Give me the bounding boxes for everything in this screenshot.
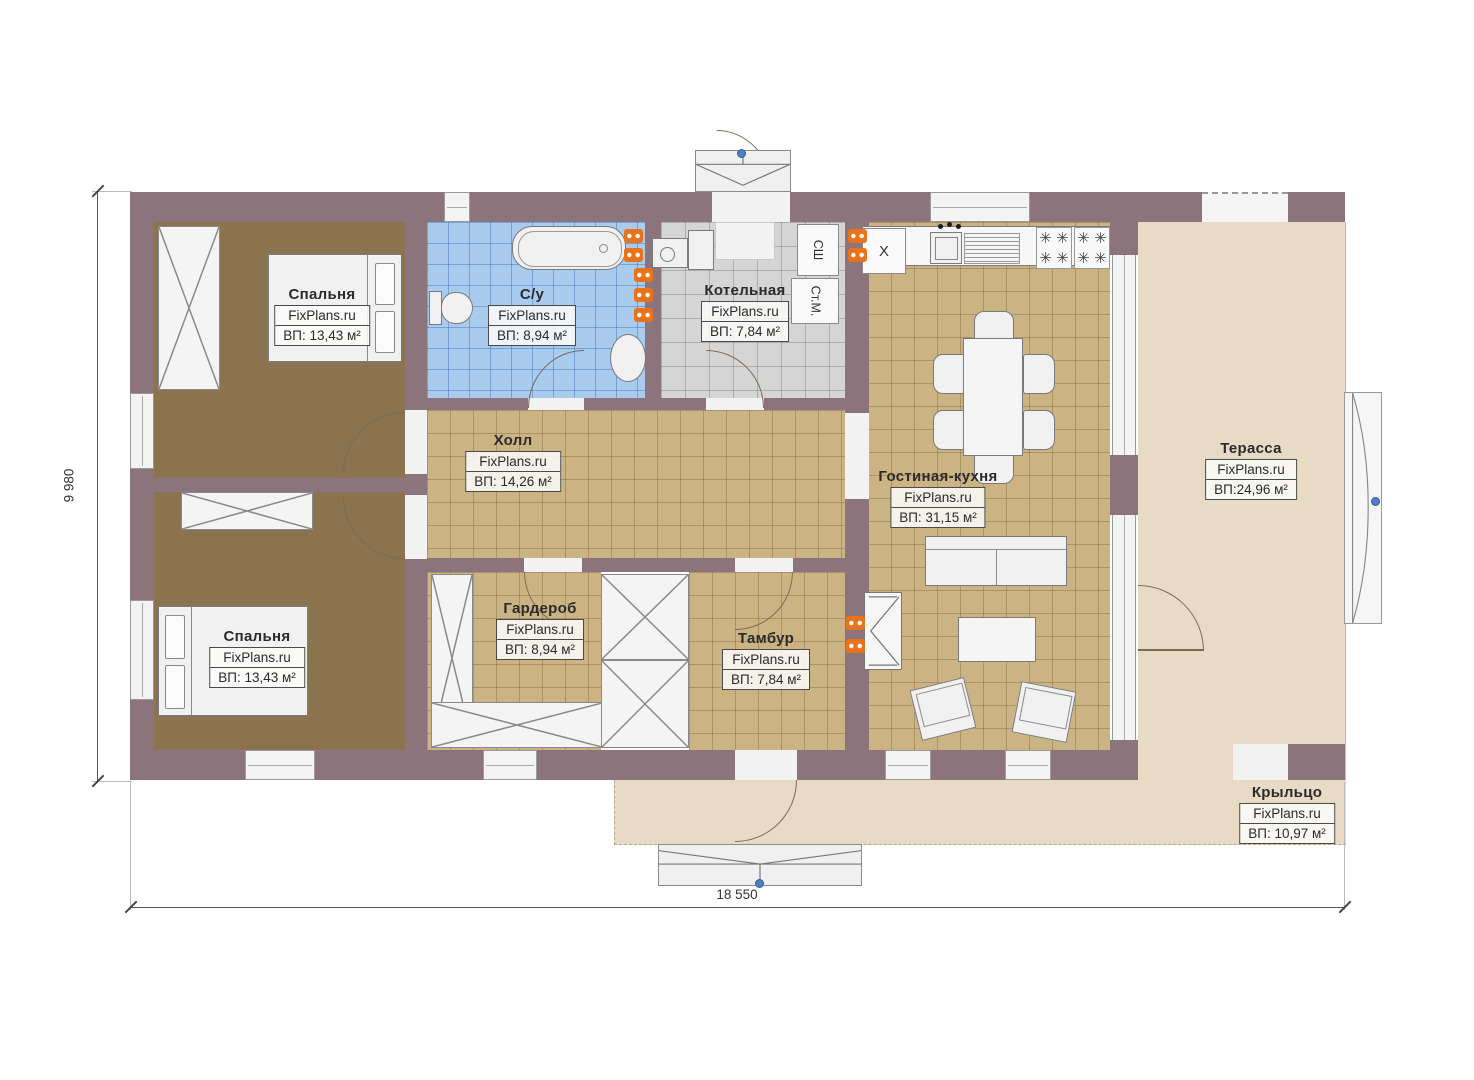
- window-living-south-2: [1005, 750, 1051, 780]
- opening-hall-living: [845, 413, 869, 499]
- room-area: ВП:24,96 м²: [1206, 480, 1296, 499]
- watermark: FixPlans.ru: [497, 620, 583, 640]
- door-opening-wardrobe: [524, 558, 582, 572]
- dining-chair: [974, 311, 1014, 341]
- window-living-south-1: [885, 750, 931, 780]
- room-name: Гардероб: [496, 600, 584, 617]
- sink-drainer: [964, 233, 1020, 264]
- dining-chair: [933, 354, 965, 394]
- wall-bedrooms-divider: [154, 478, 405, 492]
- kitchen-sink: [930, 232, 962, 264]
- drying-cabinet: СШ: [797, 224, 839, 276]
- dimension-line-width: [130, 907, 1345, 908]
- watermark: FixPlans.ru: [723, 650, 809, 670]
- watermark: FixPlans.ru: [275, 306, 369, 326]
- room-area: ВП: 31,15 м²: [891, 508, 985, 527]
- watermark: FixPlans.ru: [489, 306, 575, 326]
- room-area: ВП: 13,43 м²: [275, 326, 369, 345]
- radiator-icon: [848, 248, 867, 262]
- radiator-icon: [846, 616, 865, 630]
- watermark: FixPlans.ru: [210, 648, 304, 668]
- closet-wardrobe-bottom: [431, 702, 603, 748]
- wall-right-bottom: [1110, 740, 1138, 780]
- window-bedroom-1: [130, 393, 154, 469]
- radiator-icon: [634, 288, 653, 302]
- dining-chair: [933, 410, 965, 450]
- room-name: Тамбур: [722, 630, 810, 647]
- room-area: ВП: 8,94 м²: [489, 326, 575, 345]
- dimension-label-width: 18 550: [677, 887, 797, 902]
- fridge: X: [862, 228, 906, 274]
- toilet-bowl: [441, 292, 473, 324]
- window-top-small: [444, 192, 470, 222]
- drying-cabinet-label: СШ: [811, 240, 825, 260]
- extension-line: [130, 782, 131, 910]
- dining-chair: [1023, 410, 1055, 450]
- watermark: FixPlans.ru: [891, 488, 985, 508]
- washing-machine-label: Ст.М.: [808, 286, 822, 317]
- dimension-line-height: [97, 192, 98, 782]
- extension-line: [1344, 782, 1345, 910]
- washing-machine: Ст.М.: [791, 278, 839, 324]
- room-label-wardrobe: Гардероб FixPlans.ru ВП: 8,94 м²: [496, 600, 584, 660]
- room-area: ВП: 7,84 м²: [702, 322, 788, 341]
- room-area: ВП: 13,43 м²: [210, 668, 304, 687]
- closet-bedroom-2: [181, 492, 313, 530]
- stove-2: ✳✳✳✳: [1074, 227, 1110, 269]
- dining-table: [963, 338, 1023, 456]
- wall-bath-hall: [427, 398, 845, 410]
- door-opening-bedroom-1: [405, 410, 427, 474]
- terrace-side-window: [1344, 392, 1382, 624]
- wall-bottom-left: [130, 750, 640, 780]
- wall-terrace-bottom: [1288, 744, 1345, 780]
- room-area: ВП: 8,94 м²: [497, 640, 583, 659]
- room-name: Спальня: [274, 286, 370, 303]
- wall-right-top: [1110, 222, 1138, 255]
- opening-terrace-top: [1202, 192, 1288, 222]
- door-opening-entrance: [735, 750, 797, 780]
- sofa: [925, 536, 1067, 586]
- dimension-label-height: 9 980: [61, 469, 76, 503]
- room-name: Гостиная-кухня: [878, 468, 997, 485]
- bathtub: [512, 226, 626, 270]
- room-name: С/у: [488, 286, 576, 303]
- radiator-icon: [624, 229, 643, 243]
- faucet-dot: [947, 222, 952, 227]
- boiler-cabinet: [688, 230, 714, 270]
- coffee-table: [958, 617, 1036, 662]
- room-area: ВП: 10,97 м²: [1240, 824, 1334, 843]
- watermark: FixPlans.ru: [702, 302, 788, 322]
- marker-dot: [1371, 497, 1380, 506]
- fridge-mark: X: [879, 243, 889, 260]
- radiator-icon: [634, 308, 653, 322]
- floor-porch: [614, 780, 1346, 845]
- door-opening-bedroom-2: [405, 495, 427, 559]
- room-label-living-kitchen: Гостиная-кухня FixPlans.ru ВП: 31,15 м²: [878, 468, 997, 528]
- room-label-boiler-room: Котельная FixPlans.ru ВП: 7,84 м²: [701, 282, 789, 342]
- room-label-bedroom-2: Спальня FixPlans.ru ВП: 13,43 м²: [209, 628, 305, 688]
- watermark: FixPlans.ru: [466, 452, 560, 472]
- boiler-landing: [715, 222, 775, 260]
- room-label-vestibule: Тамбур FixPlans.ru ВП: 7,84 м²: [722, 630, 810, 690]
- room-name: Терасса: [1205, 440, 1297, 457]
- fireplace: [864, 592, 902, 670]
- wall-bedrooms-hall: [405, 222, 427, 750]
- room-name: Спальня: [209, 628, 305, 645]
- radiator-icon: [848, 229, 867, 243]
- bathroom-sink: [610, 334, 646, 382]
- watermark: FixPlans.ru: [1206, 460, 1296, 480]
- floor-plan: СШ Ст.М. X ✳✳✳✳ ✳✳✳✳: [0, 0, 1474, 1080]
- radiator-icon: [624, 248, 643, 262]
- wall-right-mid: [1110, 455, 1138, 515]
- dining-chair: [1023, 354, 1055, 394]
- closet-vestibule-upper: [601, 574, 689, 660]
- door-opening-vestibule-top: [735, 558, 793, 572]
- marker-dot: [737, 149, 746, 158]
- room-area: ВП: 7,84 м²: [723, 670, 809, 689]
- stove: ✳✳✳✳: [1036, 227, 1072, 269]
- closet-vestibule-lower: [601, 660, 689, 748]
- floor-terrace: [1138, 222, 1346, 780]
- room-area: ВП: 14,26 м²: [466, 472, 560, 491]
- armchair: [1012, 681, 1077, 743]
- room-label-hall: Холл FixPlans.ru ВП: 14,26 м²: [465, 432, 561, 492]
- faucet-dot: [956, 224, 961, 229]
- room-label-bedroom-1: Спальня FixPlans.ru ВП: 13,43 м²: [274, 286, 370, 346]
- room-label-terrace: Терасса FixPlans.ru ВП:24,96 м²: [1205, 440, 1297, 500]
- faucet-dot: [938, 224, 943, 229]
- radiator-icon: [634, 268, 653, 282]
- room-label-bathroom: С/у FixPlans.ru ВП: 8,94 м²: [488, 286, 576, 346]
- window-bedroom-2: [130, 600, 154, 700]
- door-opening-boiler-top: [712, 192, 790, 222]
- room-name: Крыльцо: [1239, 784, 1335, 801]
- opening-terrace-porch: [1233, 744, 1288, 780]
- window-bedroom-2-south: [245, 750, 315, 780]
- closet-bedroom-1: [158, 226, 220, 390]
- radiator-icon: [846, 639, 865, 653]
- window-kitchen: [930, 192, 1030, 222]
- boiler-unit: [652, 238, 688, 268]
- room-name: Холл: [465, 432, 561, 449]
- watermark: FixPlans.ru: [1240, 804, 1334, 824]
- room-label-porch: Крыльцо FixPlans.ru ВП: 10,97 м²: [1239, 784, 1335, 844]
- door-leaf-terrace: [1138, 649, 1204, 651]
- window-wardrobe-south: [483, 750, 537, 780]
- room-name: Котельная: [701, 282, 789, 299]
